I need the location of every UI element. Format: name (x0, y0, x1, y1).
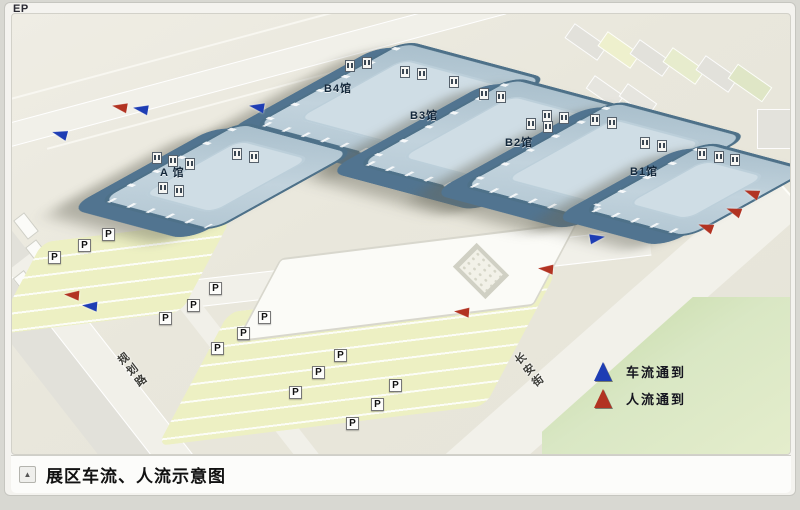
entrance-sign (526, 118, 536, 130)
parking-marker: P (78, 239, 91, 252)
entrance-sign (730, 154, 740, 166)
pedestrian-flow-arrow (538, 263, 554, 274)
vehicle-arrow-icon (594, 362, 612, 381)
screenshot-stage: EP (0, 0, 800, 510)
entrance-sign (542, 110, 552, 122)
vehicle-flow-arrow (248, 101, 265, 113)
entrance-sign (249, 151, 259, 163)
map-panel: EP (4, 2, 796, 496)
entrance-sign (590, 114, 600, 126)
entrance-sign (697, 148, 707, 160)
pedestrian-flow-arrow (454, 306, 470, 317)
map-canvas: B4馆B3馆B2馆B1馆A 馆PPPPPPPPPPPPPPP规划路长安街 车流通… (11, 13, 791, 455)
entrance-sign (158, 182, 168, 194)
collapse-toggle-button[interactable]: ▲ (19, 466, 36, 483)
entrance-sign (559, 112, 569, 124)
caption-bar: ▲ 展区车流、人流示意图 (11, 455, 791, 493)
parking-marker: P (289, 386, 302, 399)
parking-marker: P (211, 342, 224, 355)
entrance-sign (152, 152, 162, 164)
entrance-sign (417, 68, 427, 80)
vehicle-flow-arrow (82, 300, 98, 311)
legend: 车流通到 人流通到 (594, 358, 789, 412)
parking-marker: P (389, 379, 402, 392)
entrance-sign (543, 121, 553, 133)
parking-marker: P (334, 349, 347, 362)
parking-marker: P (48, 251, 61, 264)
parking-marker: P (312, 366, 325, 379)
pedestrian-flow-arrow (64, 289, 80, 300)
hall-label: B2馆 (505, 134, 533, 150)
entrance-sign (232, 148, 242, 160)
parking-marker: P (159, 312, 172, 325)
parking-marker: P (102, 228, 115, 241)
hall-label: B3馆 (410, 107, 438, 123)
entrance-sign (400, 66, 410, 78)
entrance-sign (657, 140, 667, 152)
parking-marker: P (371, 398, 384, 411)
entrance-sign (607, 117, 617, 129)
small-building (13, 212, 39, 240)
hall-label: B4馆 (324, 80, 352, 96)
city-block (728, 64, 773, 103)
entrance-sign (479, 88, 489, 100)
entrance-sign (640, 137, 650, 149)
parking-marker: P (187, 299, 200, 312)
entrance-sign (345, 60, 355, 72)
entrance-sign (168, 155, 178, 167)
parking-marker: P (258, 311, 271, 324)
entrance-sign (496, 91, 506, 103)
parking-marker: P (346, 417, 359, 430)
entrance-sign (362, 57, 372, 69)
entrance-sign (449, 76, 459, 88)
legend-row-vehicle: 车流通到 (594, 358, 789, 385)
pedestrian-arrow-icon (594, 389, 612, 408)
parking-marker: P (209, 282, 222, 295)
entrance-sign (714, 151, 724, 163)
legend-label-vehicle: 车流通到 (626, 362, 686, 381)
caption-title: 展区车流、人流示意图 (46, 462, 226, 487)
city-block (757, 109, 791, 149)
legend-row-pedestrian: 人流通到 (594, 385, 789, 412)
hall-label: B1馆 (630, 163, 658, 179)
legend-label-pedestrian: 人流通到 (626, 389, 686, 408)
entrance-sign (185, 158, 195, 170)
parking-marker: P (237, 327, 250, 340)
entrance-sign (174, 185, 184, 197)
